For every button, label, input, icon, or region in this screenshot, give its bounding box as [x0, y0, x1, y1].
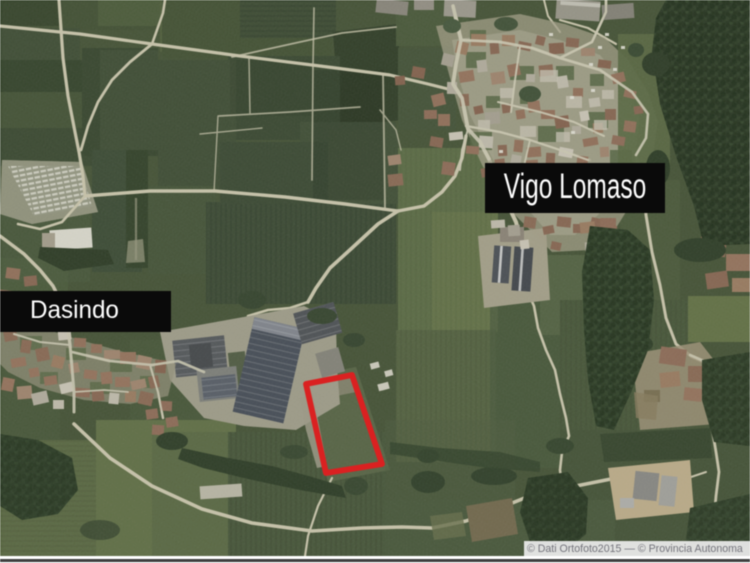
svg-text:© Dati Ortofoto2015 — © Provin: © Dati Ortofoto2015 — © Provincia Autono…	[527, 543, 743, 555]
svg-text:Vigo Lomaso: Vigo Lomaso	[504, 168, 646, 206]
svg-text:Dasindo: Dasindo	[30, 297, 119, 324]
